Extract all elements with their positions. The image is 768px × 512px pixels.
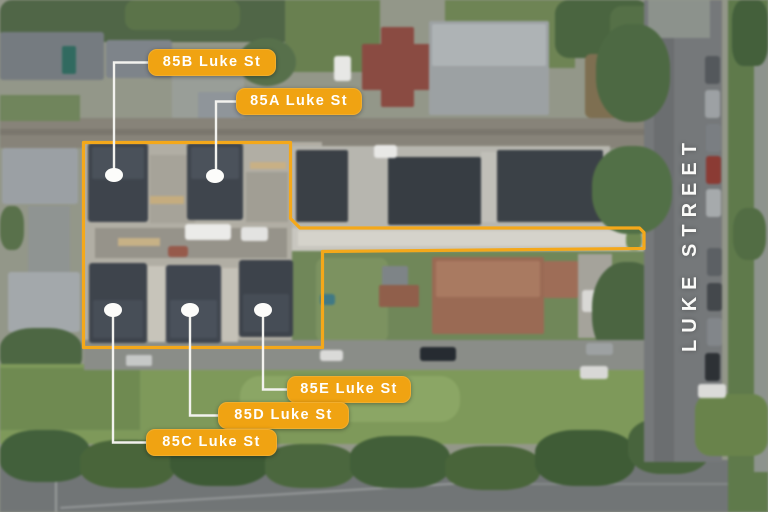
scaffolding [148,266,165,342]
parked-car [706,189,721,217]
lawn [0,95,80,121]
roof-ridge [92,147,144,179]
lane-marking [55,478,57,512]
parked-car [586,343,613,355]
parked-car [707,283,722,311]
tree-canopy [125,0,240,30]
house-roof [0,32,104,80]
driveway [28,206,70,272]
grass-field-dark [0,368,140,430]
tree-canopy [0,206,24,250]
parked-van [334,56,351,81]
tree-canopy [265,444,355,488]
shed-roof [382,266,408,286]
address-label-85b: 85B Luke St [148,49,276,76]
parked-car [707,248,722,276]
parked-car-red [706,156,721,184]
parked-truck [580,366,608,379]
house-roof-dark [388,157,481,225]
lane-surface [84,340,646,370]
parked-car [374,145,397,158]
parked-car [705,56,720,84]
aerial-photo: 85B Luke St 85A Luke St 85E Luke St 85D … [0,0,768,512]
tree-canopy [0,430,90,482]
debris [168,246,188,257]
roof-ridge [93,300,143,338]
timber-stack [250,162,286,169]
pool [320,294,335,305]
skip-bin [62,46,76,74]
red-house-roof [381,27,414,107]
tree-canopy [732,0,768,66]
roof-ridge [170,300,217,338]
timber-stack [118,238,160,246]
roof-ridge [432,24,546,66]
terracotta-roof-ridge [436,261,540,297]
parked-car [707,318,722,346]
house-roof-dark [296,150,348,222]
parked-car [706,124,721,152]
roof-ridge [191,147,239,179]
parked-car [420,347,456,361]
street-name-label: LUKE STREET [677,114,703,374]
parked-car [705,353,720,381]
house-roof [2,148,78,204]
building-materials [246,172,288,222]
address-label-85e: 85E Luke St [287,376,411,403]
parked-car [320,350,343,361]
shed-roof-brown [379,285,419,307]
scaffolding [222,268,238,342]
address-label-85d: 85D Luke St [218,402,349,429]
tree-canopy [596,24,670,122]
tree-canopy [350,436,450,488]
parked-car [698,384,726,398]
tree-canopy [733,208,766,260]
work-truck [185,224,231,240]
tire-marks [0,129,648,135]
grass-berm [695,394,768,456]
path [481,152,497,222]
trailer [126,355,152,366]
terracotta-roof-wing [544,261,578,298]
tree-canopy [535,430,635,486]
tree-canopy [592,146,672,234]
house-roof [8,272,80,332]
address-label-85c: 85C Luke St [146,429,277,456]
address-label-85a: 85A Luke St [236,88,362,115]
tree-canopy [445,446,540,490]
aerial-photo-layers [0,0,768,512]
work-van [241,227,268,241]
path [648,0,710,38]
parked-car [705,90,720,118]
house-roof-dark [497,150,603,222]
roof-ridge [243,294,289,332]
timber-stack [150,196,184,204]
driveway-concrete-light [298,231,636,246]
